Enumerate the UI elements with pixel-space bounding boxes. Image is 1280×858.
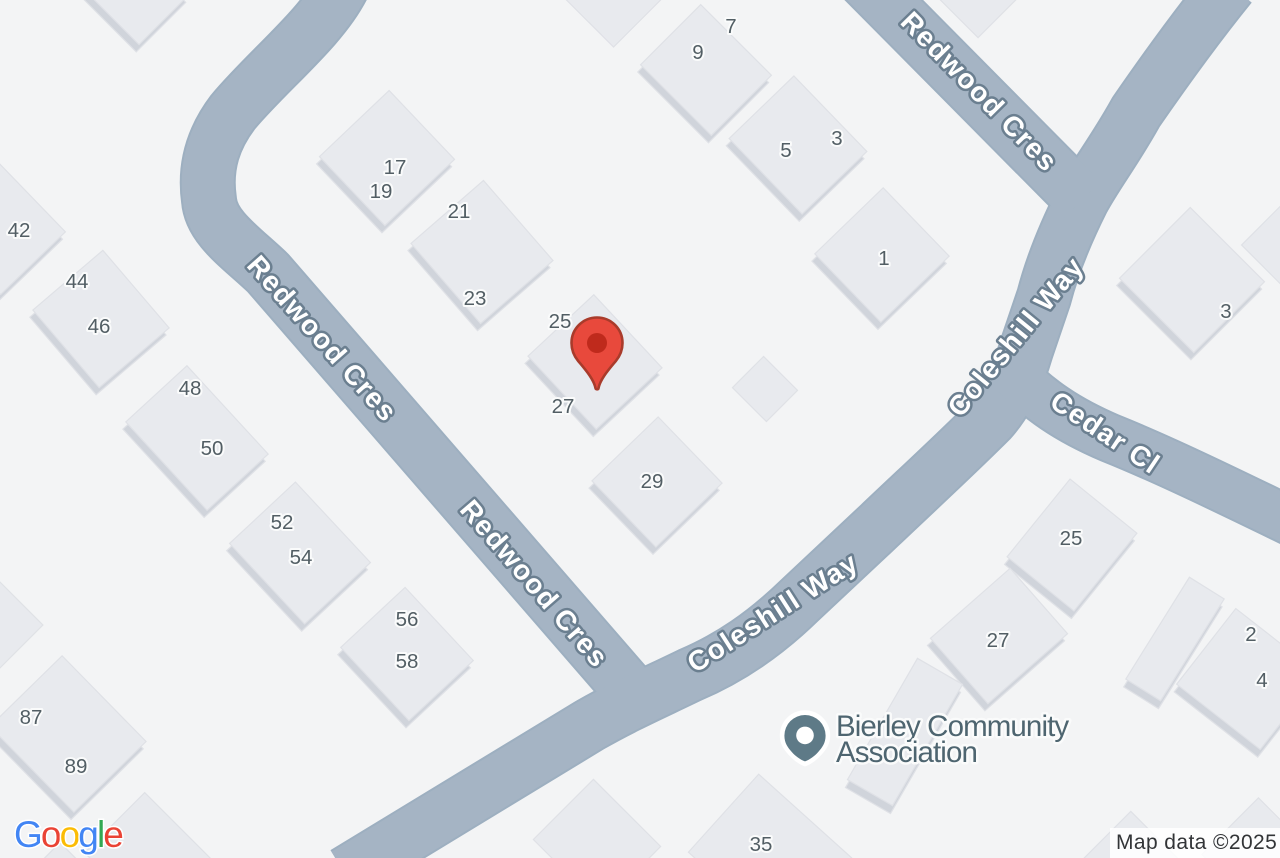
svg-text:50: 50 <box>201 437 224 460</box>
svg-text:21: 21 <box>448 200 471 223</box>
svg-text:3: 3 <box>1220 300 1231 323</box>
svg-text:58: 58 <box>396 650 419 673</box>
svg-text:19: 19 <box>370 180 393 203</box>
svg-text:1: 1 <box>878 247 889 270</box>
svg-text:Map data ©2025: Map data ©2025 <box>1116 831 1277 854</box>
svg-text:25: 25 <box>1060 527 1083 550</box>
svg-text:23: 23 <box>464 287 487 310</box>
svg-text:56: 56 <box>396 608 419 631</box>
svg-text:46: 46 <box>88 315 111 338</box>
svg-text:7: 7 <box>725 15 736 38</box>
svg-text:54: 54 <box>290 546 313 569</box>
svg-text:35: 35 <box>750 833 773 856</box>
svg-text:17: 17 <box>384 156 407 179</box>
svg-text:42: 42 <box>8 219 31 242</box>
svg-text:87: 87 <box>20 706 43 729</box>
svg-text:44: 44 <box>66 270 89 293</box>
svg-text:2: 2 <box>1245 623 1256 646</box>
svg-text:29: 29 <box>641 470 664 493</box>
svg-text:4: 4 <box>1256 669 1267 692</box>
svg-text:48: 48 <box>179 377 202 400</box>
svg-text:25: 25 <box>549 310 572 333</box>
svg-text:52: 52 <box>271 511 294 534</box>
svg-text:3: 3 <box>831 127 842 150</box>
svg-text:Association: Association <box>836 736 977 769</box>
svg-text:89: 89 <box>65 755 88 778</box>
svg-text:5: 5 <box>780 139 791 162</box>
svg-text:27: 27 <box>552 395 575 418</box>
svg-text:9: 9 <box>692 41 703 64</box>
svg-text:27: 27 <box>987 629 1010 652</box>
svg-text:Google: Google <box>14 814 122 855</box>
